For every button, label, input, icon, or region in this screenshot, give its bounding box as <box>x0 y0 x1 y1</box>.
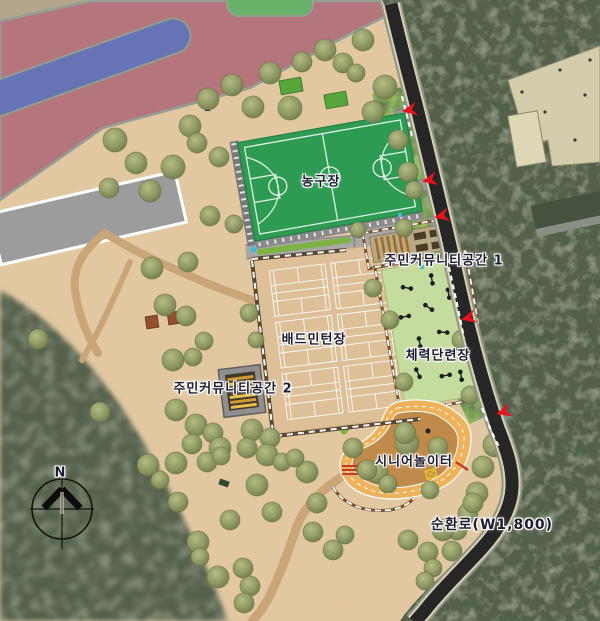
tree <box>165 399 187 421</box>
tree <box>262 502 282 522</box>
tree <box>246 474 268 496</box>
tree <box>221 74 243 96</box>
tree <box>248 332 264 348</box>
tree <box>237 438 257 458</box>
tree <box>278 96 302 120</box>
tree <box>234 593 254 613</box>
tree <box>220 510 240 530</box>
tree <box>242 96 264 118</box>
tree <box>343 438 363 458</box>
tree <box>398 162 418 182</box>
tree <box>347 64 365 82</box>
tree <box>398 530 418 550</box>
tree <box>336 526 354 544</box>
utility-marker <box>398 213 402 217</box>
tree <box>197 88 219 110</box>
green-strip <box>227 0 313 16</box>
utility-marker <box>251 247 256 252</box>
tree <box>373 75 397 99</box>
basketball-court-label: 농구장 <box>302 171 341 190</box>
tree <box>187 133 207 153</box>
tree <box>395 373 413 391</box>
tree <box>99 178 119 198</box>
senior-playground-label: 시니어놀이터 <box>375 451 453 470</box>
tree <box>176 306 196 326</box>
tree <box>381 311 399 329</box>
tree <box>165 452 187 474</box>
tree <box>161 155 185 179</box>
tree <box>314 39 336 61</box>
tree <box>394 422 416 444</box>
tree <box>286 449 304 467</box>
tree <box>240 304 258 322</box>
ring-road-label: 순환로(W1,800) <box>431 514 553 534</box>
tree <box>362 101 384 123</box>
badminton-court-label: 배드민턴장 <box>282 329 347 348</box>
tree <box>405 181 423 199</box>
tree <box>162 349 184 371</box>
tree <box>292 52 312 72</box>
tree <box>209 147 229 167</box>
tree <box>352 29 374 51</box>
tree <box>151 471 169 489</box>
tree <box>168 492 188 512</box>
tree <box>139 180 161 202</box>
tree <box>90 402 110 422</box>
tree <box>233 558 253 578</box>
tree <box>103 128 127 152</box>
tree <box>212 447 230 465</box>
tree <box>225 215 243 233</box>
tree <box>184 348 202 366</box>
compass-north-label: N <box>55 466 66 481</box>
tree <box>200 206 220 226</box>
tree <box>379 475 397 493</box>
tree <box>350 222 366 238</box>
tree <box>125 152 147 174</box>
tree <box>388 130 408 150</box>
tree <box>191 548 209 566</box>
tree <box>28 329 48 349</box>
tree <box>303 522 323 542</box>
tree <box>395 219 413 237</box>
tree <box>178 252 198 272</box>
tree <box>364 279 382 297</box>
site-plan-map: 농구장 배드민턴장 주민커뮤니티공간 1 주민커뮤니티공간 2 체력단련장 시니… <box>0 0 600 621</box>
tree <box>357 460 377 480</box>
tree <box>154 294 176 316</box>
tree <box>207 566 229 588</box>
tree <box>259 62 281 84</box>
community-space-1-label: 주민커뮤니티공간 1 <box>384 250 503 269</box>
tree <box>463 493 483 513</box>
tree <box>182 434 202 454</box>
tree <box>141 257 163 279</box>
tree <box>307 493 327 513</box>
tree <box>421 481 439 499</box>
community-space-2-label: 주민커뮤니티공간 2 <box>173 378 292 397</box>
tree <box>472 456 494 478</box>
fitness-area-label: 체력단련장 <box>406 345 471 364</box>
tree <box>195 332 213 350</box>
